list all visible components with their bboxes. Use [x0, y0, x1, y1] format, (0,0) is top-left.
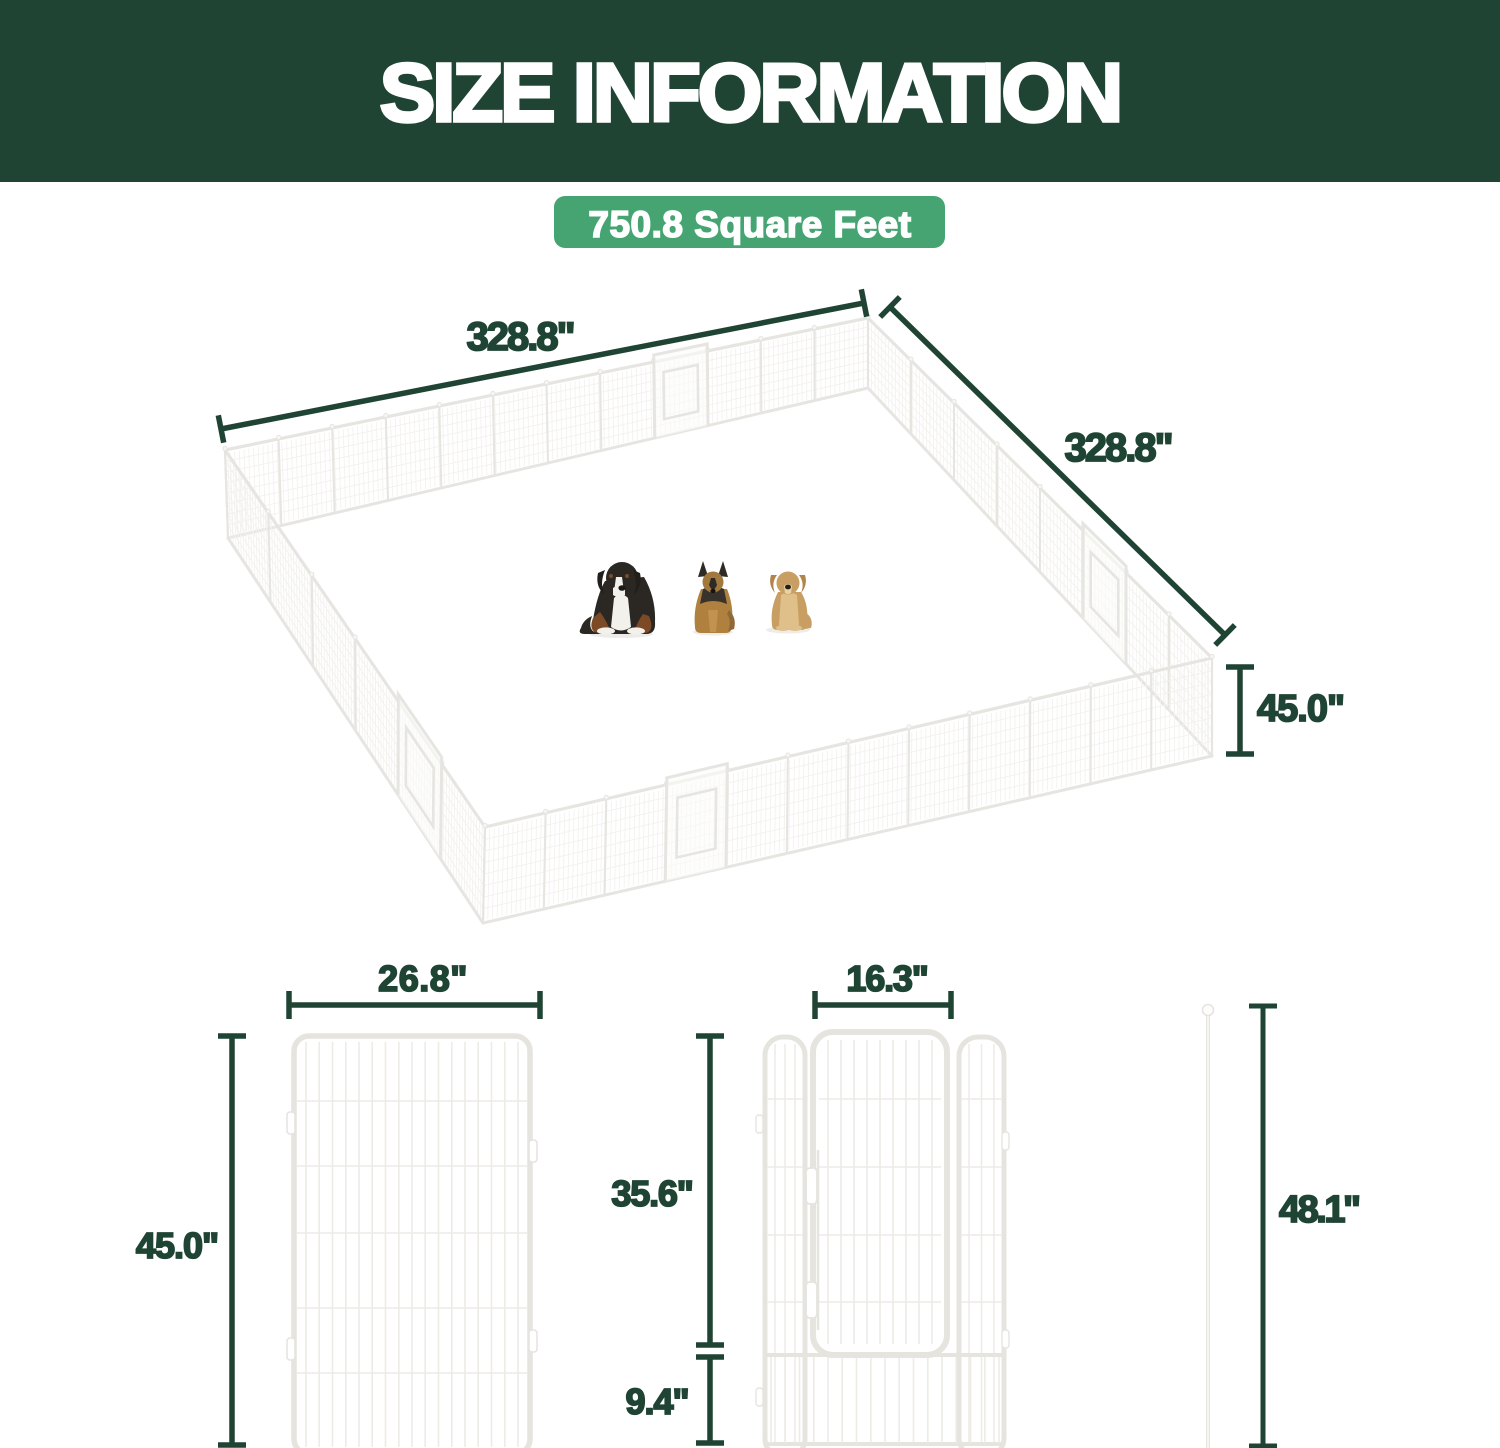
svg-text:SIZE INFORMATION: SIZE INFORMATION — [380, 46, 1121, 139]
svg-text:26.8": 26.8" — [378, 958, 468, 999]
svg-text:328.8": 328.8" — [1064, 426, 1171, 470]
svg-text:45.0": 45.0" — [1257, 688, 1344, 730]
svg-text:45.0": 45.0" — [136, 1225, 218, 1266]
svg-text:48.1": 48.1" — [1279, 1189, 1359, 1231]
svg-text:35.6": 35.6" — [611, 1173, 692, 1214]
svg-text:16.3": 16.3" — [846, 958, 927, 999]
svg-text:750.8 Square Feet: 750.8 Square Feet — [588, 204, 911, 245]
svg-text:328.8": 328.8" — [466, 315, 573, 359]
svg-text:9.4": 9.4" — [625, 1381, 688, 1422]
